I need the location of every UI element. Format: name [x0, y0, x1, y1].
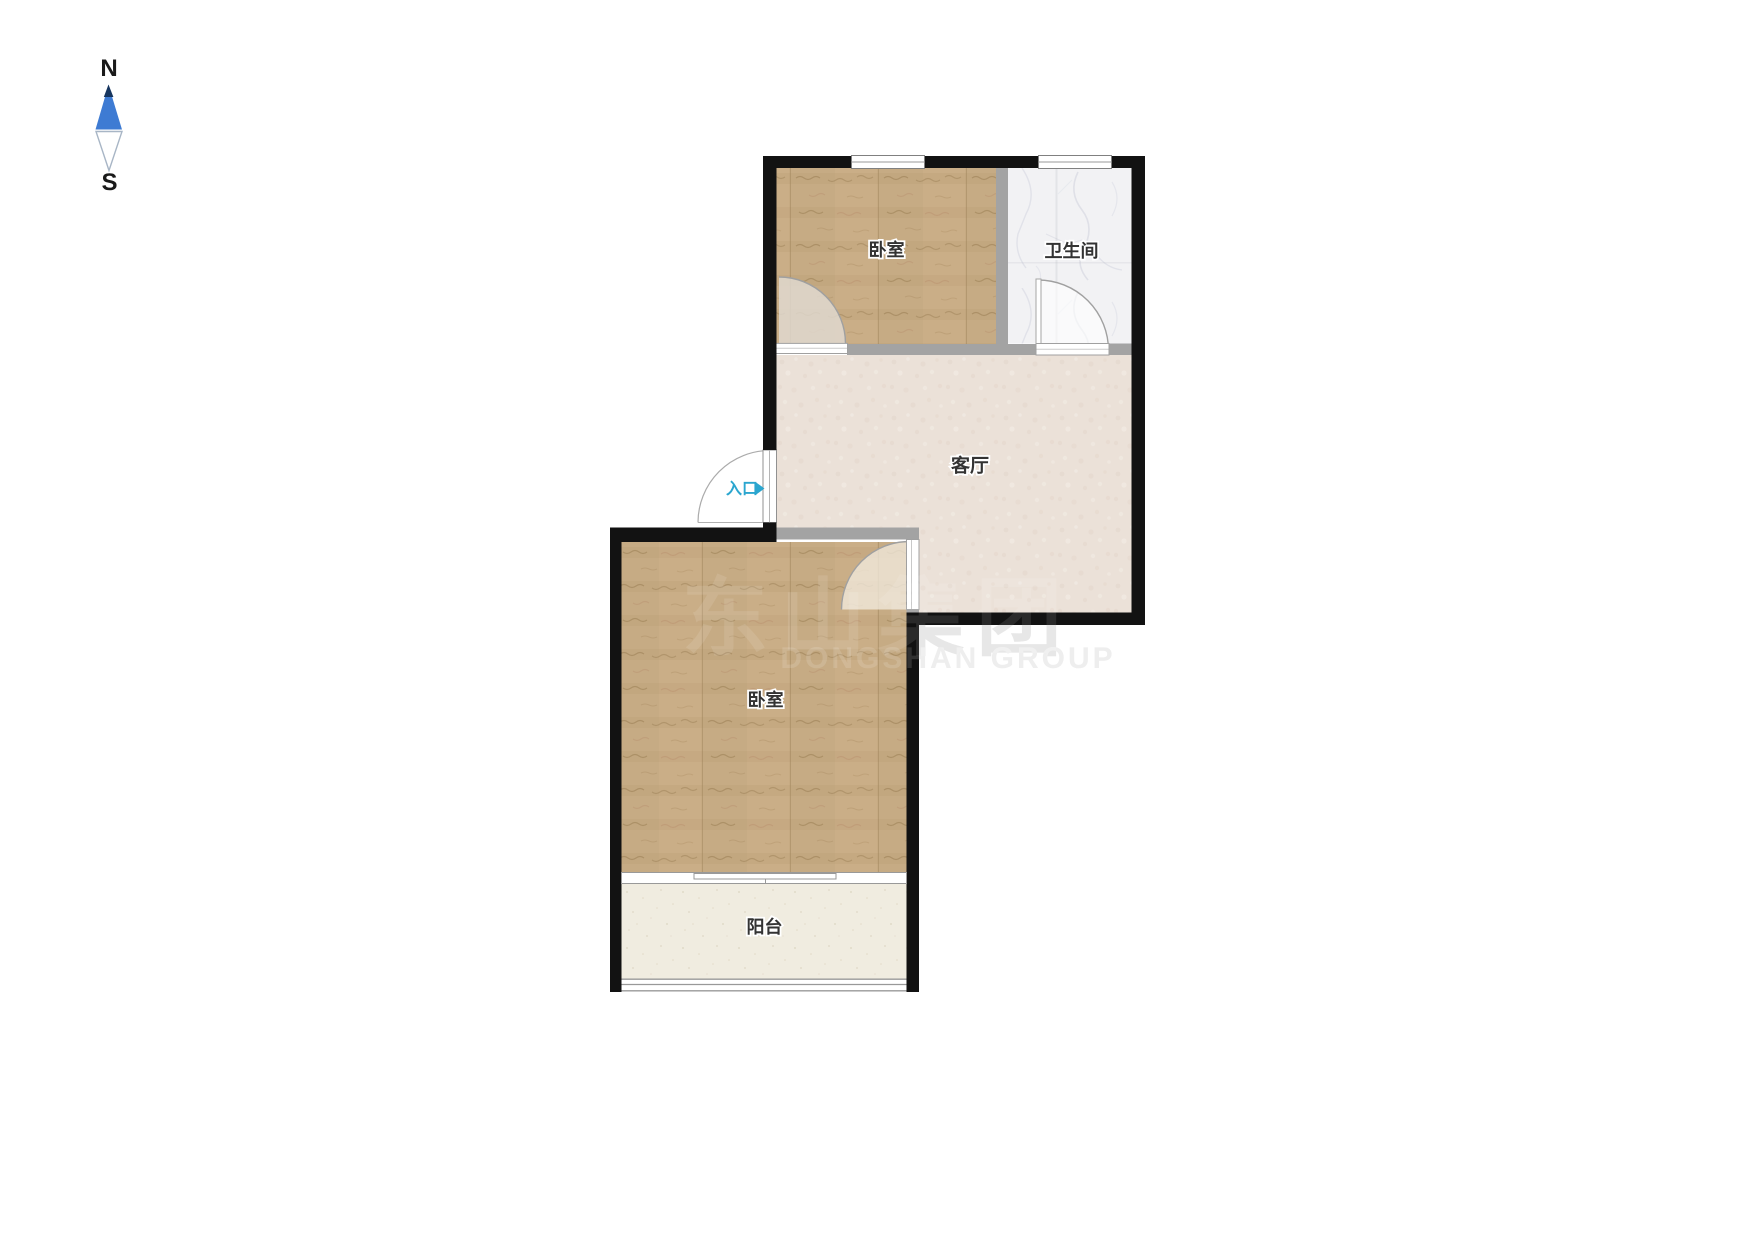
- svg-text:卫生间: 卫生间: [1045, 241, 1099, 261]
- svg-text:入口: 入口: [726, 480, 758, 498]
- svg-text:卧室: 卧室: [869, 240, 905, 260]
- svg-text:N: N: [100, 55, 117, 82]
- svg-text:DONGSHAN GROUP: DONGSHAN GROUP: [780, 642, 1115, 675]
- svg-text:客厅: 客厅: [951, 455, 989, 477]
- svg-text:S: S: [101, 169, 117, 196]
- svg-text:卧室: 卧室: [748, 690, 784, 710]
- svg-text:阳台: 阳台: [747, 917, 783, 937]
